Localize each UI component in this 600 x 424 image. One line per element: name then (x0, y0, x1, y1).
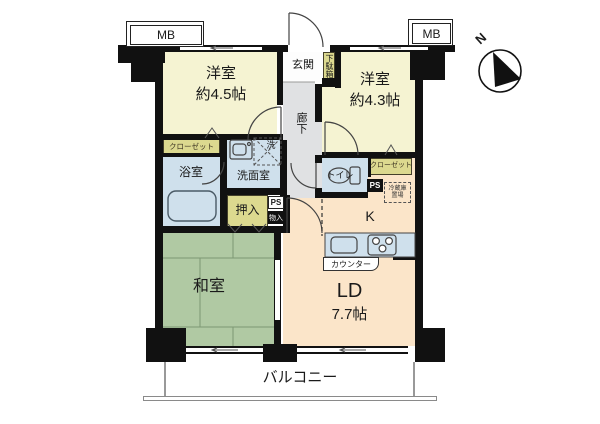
meter-box-right: MB (408, 19, 453, 46)
compass-north-label: N (472, 30, 489, 47)
wall-bath-washroom (220, 134, 227, 233)
room-western-2-size: 約4.3帖 (350, 89, 401, 110)
corridor-door-gap-western2 (315, 122, 322, 155)
fridge-space: 冷蔵庫 置場 (384, 182, 411, 203)
ps-left-label: PS (268, 196, 284, 209)
shoe-cabinet-label: 下駄箱 (325, 54, 334, 78)
meter-box-left-label: MB (157, 28, 175, 42)
wall-column-bottom-left (146, 328, 186, 362)
room-western-1-label: 洋室 約4.5帖 (176, 62, 266, 104)
living-dining-name: LD (337, 280, 363, 303)
wall (330, 45, 350, 52)
bathroom-label: 浴室 (164, 164, 218, 180)
wall-column-bottom-right (415, 328, 445, 362)
window-bottom-japanese (186, 346, 263, 354)
monoire-label: 物入 (268, 211, 284, 224)
room-western-2-name: 洋室 (360, 68, 390, 89)
living-dining-label: LD 7.7帖 (292, 280, 407, 324)
window-top-western2 (350, 45, 428, 52)
sliding-door-japanese-ld (274, 260, 281, 320)
wall (262, 45, 288, 52)
genkan-label: 玄関 (283, 58, 323, 74)
wall-japanese-top (155, 226, 287, 233)
balcony-rail-left (164, 362, 166, 396)
wall-closet-bath (163, 153, 220, 157)
fridge-space-line2: 置場 (391, 193, 403, 200)
corridor (283, 82, 315, 198)
closet-right-label: クローゼット (370, 159, 412, 174)
wall-column-top-left-2 (131, 45, 157, 82)
meter-box-left: MB (126, 21, 204, 47)
corridor-label: 廊下 (293, 112, 309, 134)
kitchen-label: K (358, 207, 382, 225)
closet-left-label: クローゼット (163, 140, 220, 153)
oshiire-label: 押入 (227, 202, 268, 218)
wall-corridor-right-2 (315, 155, 322, 163)
room-western-1-size: 約4.5帖 (196, 83, 247, 104)
fridge-space-line1: 冷蔵庫 (388, 186, 406, 193)
wall-washroom-bottom (220, 188, 287, 195)
ps-right-label: PS (367, 179, 383, 192)
wall-japanese-ld-top (274, 233, 281, 260)
toilet-label: トイレ (323, 169, 357, 182)
wall-counter-stub (393, 252, 415, 260)
floor-plan: MB MB (0, 0, 600, 424)
balcony-rail-right (413, 362, 415, 396)
balcony-label: バルコニー (240, 369, 360, 387)
balcony-edge (143, 396, 437, 401)
wall-left (155, 52, 163, 330)
window-bottom-ld (297, 346, 408, 354)
compass-icon (479, 50, 521, 92)
room-western-1-name: 洋室 (206, 62, 236, 83)
japanese-room-label: 和室 (169, 278, 249, 296)
room-western-2-label: 洋室 約4.3帖 (330, 68, 420, 110)
wall-japanese-ld-bottom (274, 320, 281, 348)
corridor-door-gap-toilet (315, 163, 322, 188)
washroom-label: 洗面室 (227, 169, 280, 185)
laundry-label: 洗 (264, 139, 278, 151)
wall-corridor-right-1 (315, 84, 322, 122)
living-dining-size: 7.7帖 (332, 303, 368, 324)
meter-box-right-label: MB (423, 27, 441, 41)
wall-oshiire-right (283, 195, 290, 233)
wall-toilet-bottom (315, 192, 368, 198)
counter-label: カウンター (323, 257, 379, 271)
